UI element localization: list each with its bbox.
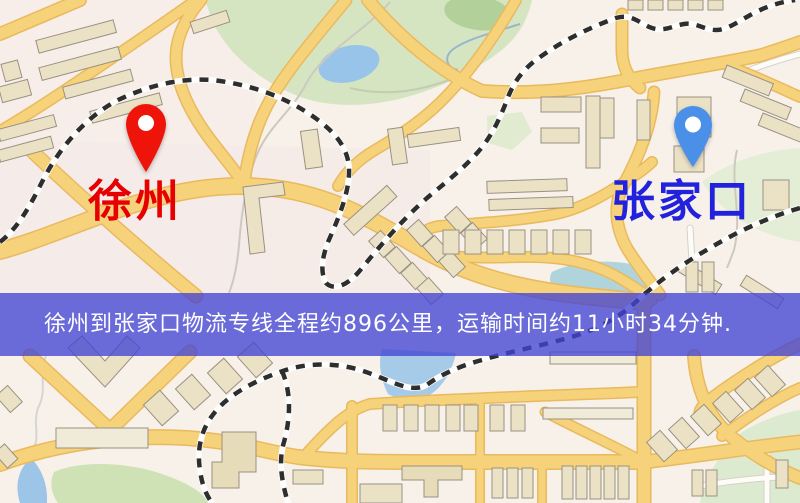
route-info-banner: 徐州到张家口物流专线全程约896公里，运输时间约11小时34分钟. [0, 293, 800, 356]
origin-label: 徐州 [88, 180, 182, 224]
origin-pin[interactable] [122, 102, 170, 174]
map-background [0, 0, 800, 503]
destination-pin[interactable] [670, 105, 716, 169]
blue-pin-icon [670, 105, 716, 169]
destination-label: 张家口 [611, 180, 752, 224]
route-info-text: 徐州到张家口物流专线全程约896公里，运输时间约11小时34分钟. [0, 293, 800, 356]
map-canvas[interactable]: 徐州 张家口 徐州到张家口物流专线全程约896公里，运输时间约11小时34分钟. [0, 0, 800, 503]
red-pin-icon [122, 102, 170, 174]
